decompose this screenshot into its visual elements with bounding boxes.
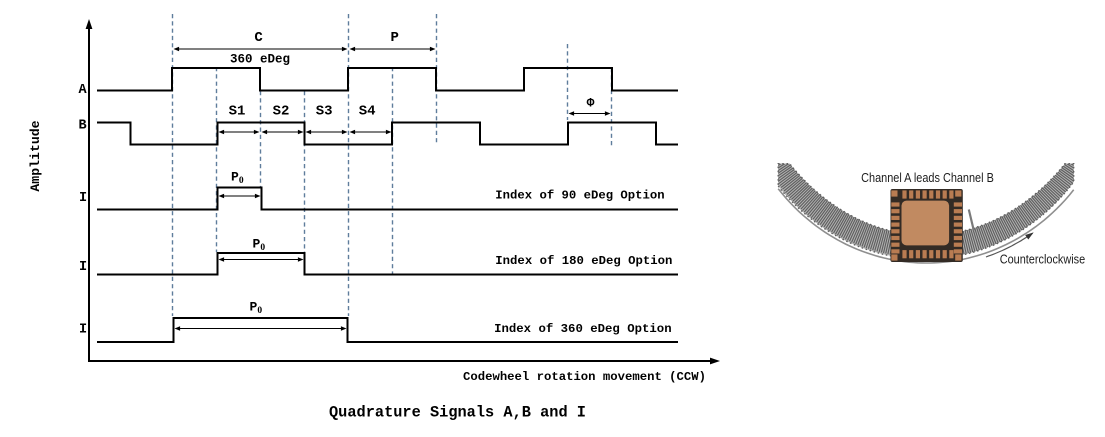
svg-text:360 eDeg: 360 eDeg [230,53,290,67]
svg-text:B: B [79,118,87,133]
svg-text:C: C [254,30,263,46]
svg-text:Counterclockwise: Counterclockwise [1000,253,1086,267]
svg-text:Index of 360 eDeg Option: Index of 360 eDeg Option [494,322,672,336]
svg-text:P0: P0 [231,170,244,187]
svg-text:Channel A leads Channel B: Channel A leads Channel B [861,171,994,185]
svg-text:P0: P0 [253,237,266,254]
svg-text:Quadrature Signals A,B and I: Quadrature Signals A,B and I [329,404,586,422]
svg-text:Φ: Φ [587,96,595,111]
svg-text:P0: P0 [250,300,263,317]
svg-text:S4: S4 [359,104,376,120]
svg-text:S2: S2 [273,104,290,120]
svg-text:I: I [79,260,87,275]
svg-text:I: I [79,191,87,206]
svg-text:Amplitude: Amplitude [28,120,43,191]
svg-text:P: P [390,30,398,46]
svg-text:Index of 90 eDeg Option: Index of 90 eDeg Option [495,189,664,203]
svg-text:Codewheel rotation movement (C: Codewheel rotation movement (CCW) [463,370,706,384]
svg-text:A: A [79,83,88,98]
svg-text:S3: S3 [316,104,333,120]
svg-text:S1: S1 [229,104,246,120]
svg-text:Index of 180 eDeg Option: Index of 180 eDeg Option [495,254,672,268]
svg-text:I: I [79,322,87,337]
